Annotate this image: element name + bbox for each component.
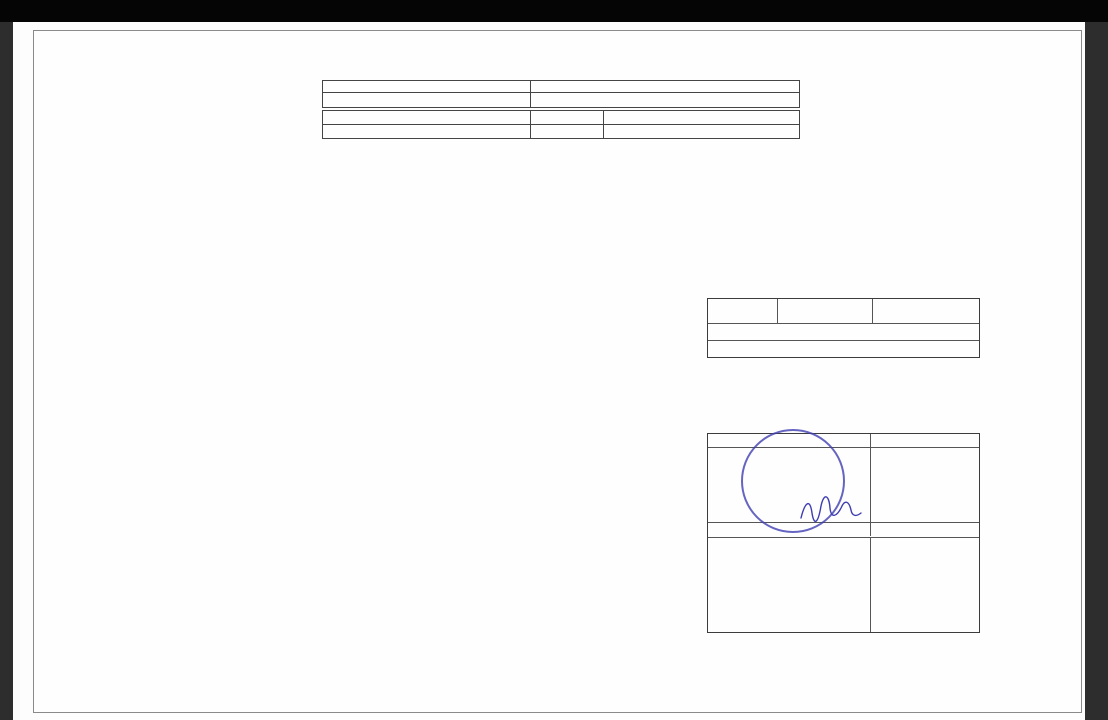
date-value bbox=[871, 448, 979, 522]
document-page bbox=[0, 0, 1108, 720]
header-denumire bbox=[778, 299, 873, 323]
header-suprafata bbox=[873, 299, 979, 323]
data-label-2 bbox=[871, 523, 979, 536]
table-row bbox=[708, 538, 979, 632]
signature-scribble bbox=[795, 490, 865, 530]
rooms-area-table bbox=[707, 298, 980, 358]
empty-cell bbox=[871, 538, 979, 632]
table-header-row bbox=[708, 299, 979, 324]
header-nr-incapere bbox=[708, 299, 778, 323]
subtotal-row bbox=[708, 324, 979, 341]
data-label bbox=[871, 434, 979, 447]
nume-prenume-label bbox=[708, 538, 871, 632]
total-row bbox=[708, 341, 979, 357]
